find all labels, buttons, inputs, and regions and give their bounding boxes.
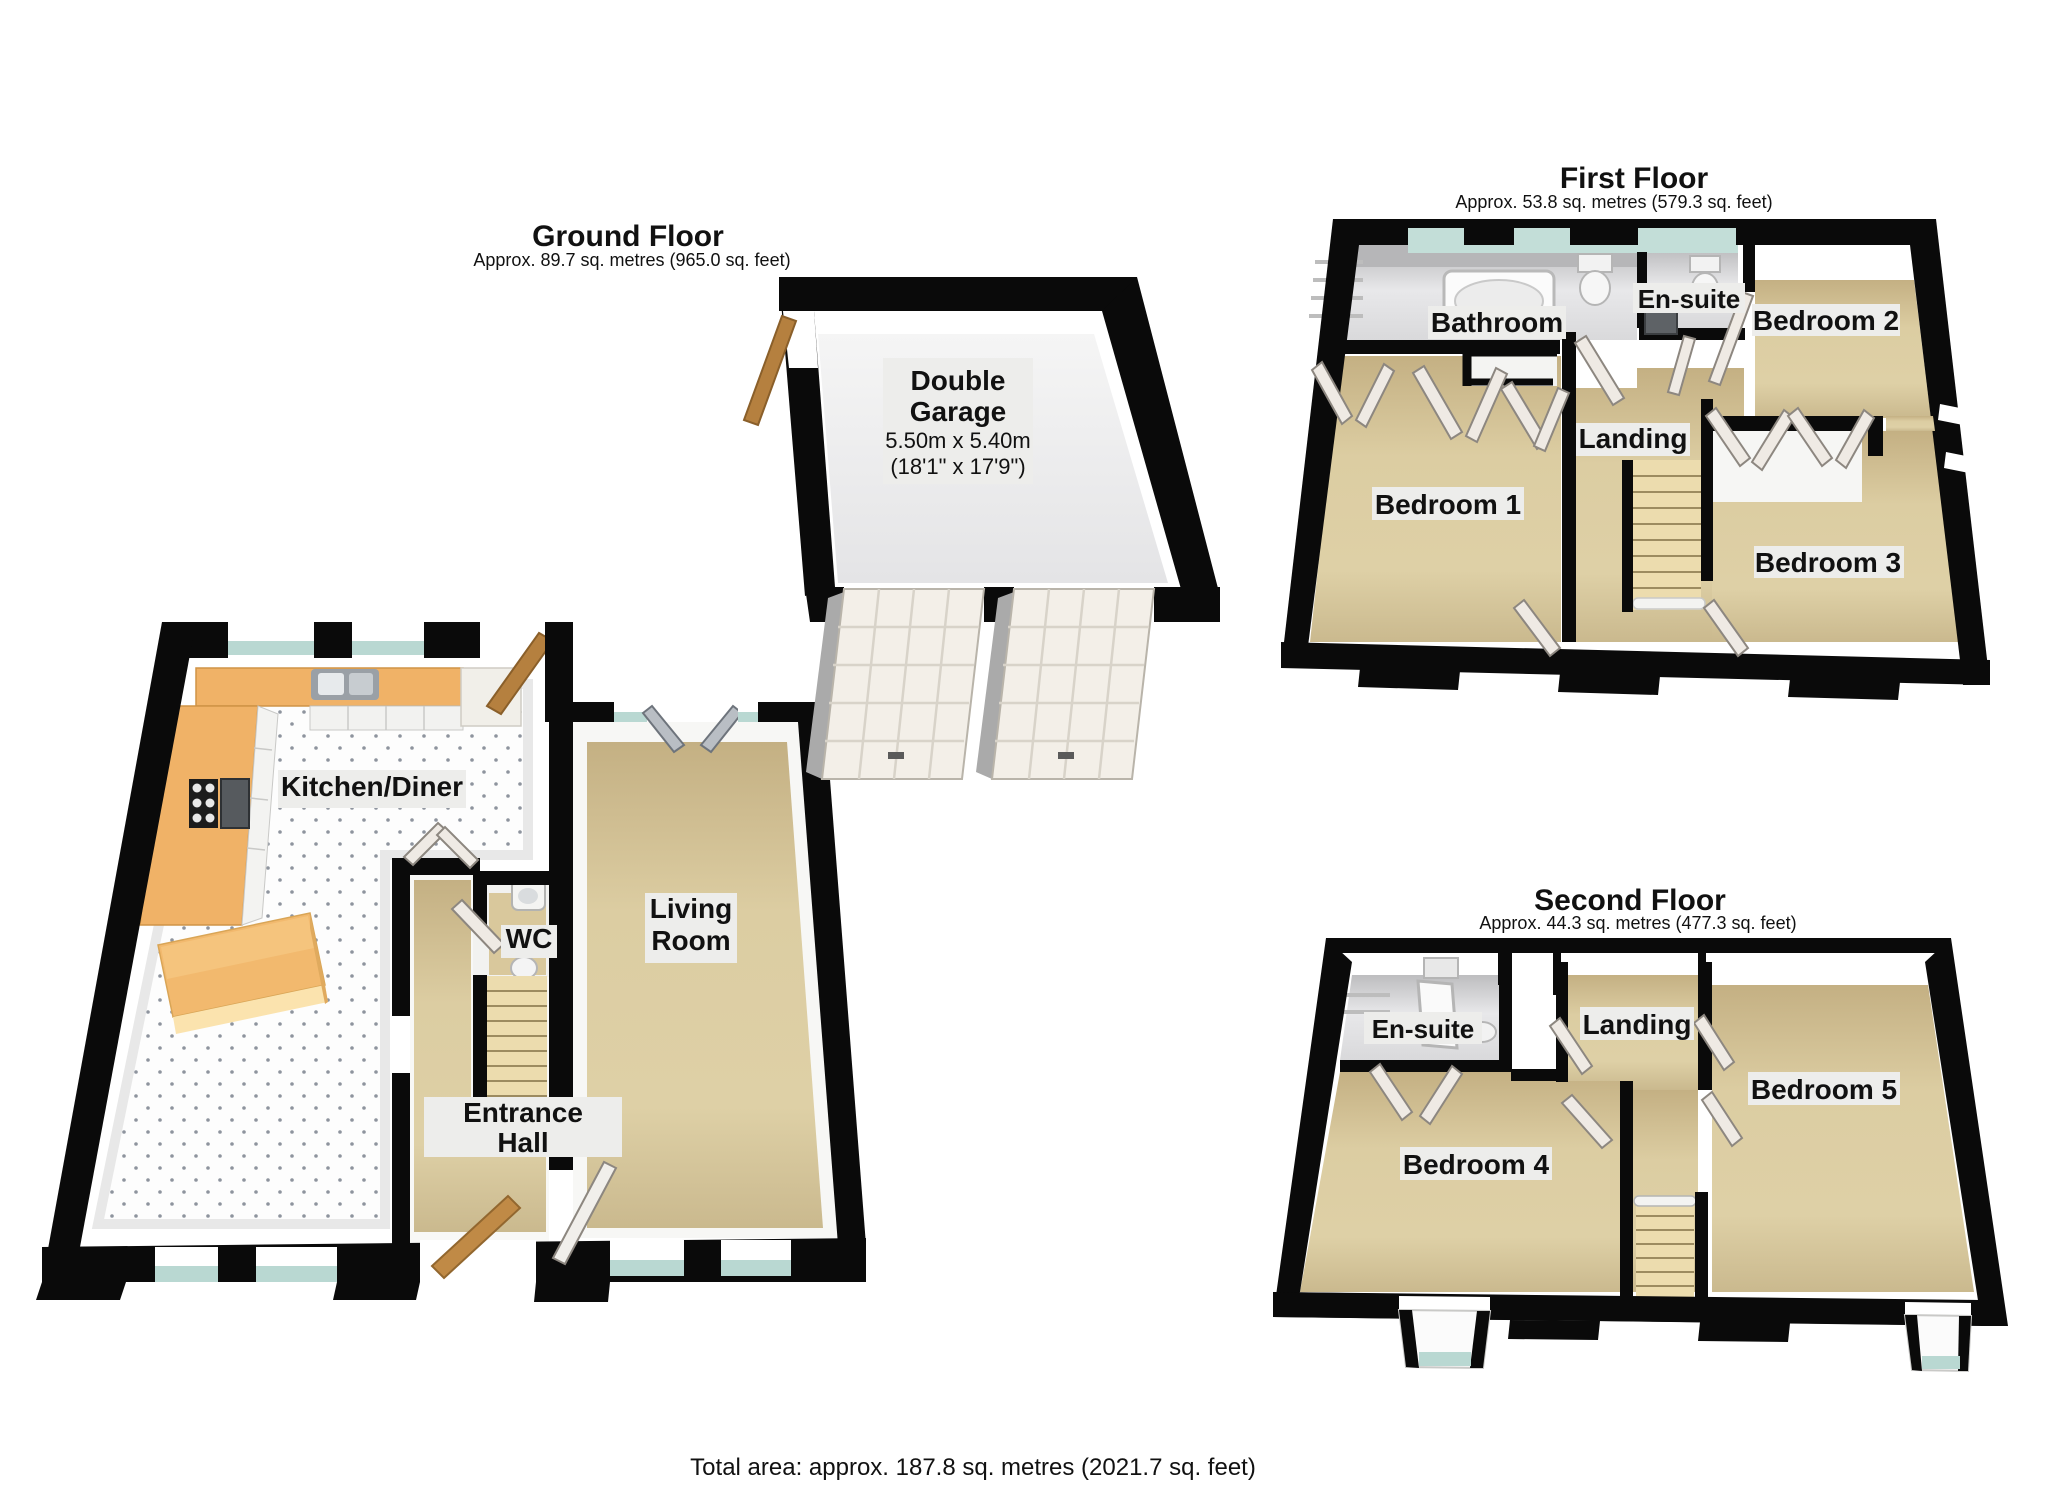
svg-text:Bedroom 1: Bedroom 1: [1375, 489, 1521, 520]
svg-text:Entrance: Entrance: [463, 1097, 583, 1128]
svg-text:5.50m x 5.40m: 5.50m x 5.40m: [885, 428, 1031, 453]
svg-text:En-suite: En-suite: [1372, 1014, 1475, 1044]
svg-text:Approx. 53.8 sq. metres (579.3: Approx. 53.8 sq. metres (579.3 sq. feet): [1455, 192, 1772, 212]
svg-text:Hall: Hall: [497, 1127, 548, 1158]
svg-text:Kitchen/Diner: Kitchen/Diner: [281, 771, 463, 802]
svg-text:Bedroom 4: Bedroom 4: [1403, 1149, 1550, 1180]
svg-text:Garage: Garage: [910, 396, 1007, 427]
svg-text:Total area: approx. 187.8 sq.: Total area: approx. 187.8 sq. metres (20…: [690, 1454, 1256, 1481]
svg-text:Living: Living: [650, 893, 732, 924]
svg-text:WC: WC: [506, 923, 553, 954]
svg-text:First Floor: First Floor: [1560, 162, 1709, 195]
svg-text:(18'1" x 17'9"): (18'1" x 17'9"): [890, 454, 1025, 479]
svg-text:Bedroom 3: Bedroom 3: [1755, 547, 1901, 578]
svg-text:En-suite: En-suite: [1638, 284, 1741, 314]
svg-text:Landing: Landing: [1579, 423, 1688, 454]
svg-text:Ground Floor: Ground Floor: [532, 220, 724, 253]
svg-text:Landing: Landing: [1583, 1009, 1692, 1040]
svg-text:Approx. 44.3 sq. metres (477.3: Approx. 44.3 sq. metres (477.3 sq. feet): [1479, 913, 1796, 933]
svg-text:Bedroom 5: Bedroom 5: [1751, 1074, 1897, 1105]
svg-text:Room: Room: [651, 925, 730, 956]
svg-text:Approx. 89.7 sq. metres (965.0: Approx. 89.7 sq. metres (965.0 sq. feet): [473, 250, 790, 270]
svg-text:Double: Double: [911, 365, 1006, 396]
svg-text:Bedroom 2: Bedroom 2: [1753, 305, 1899, 336]
svg-text:Bathroom: Bathroom: [1431, 307, 1563, 338]
